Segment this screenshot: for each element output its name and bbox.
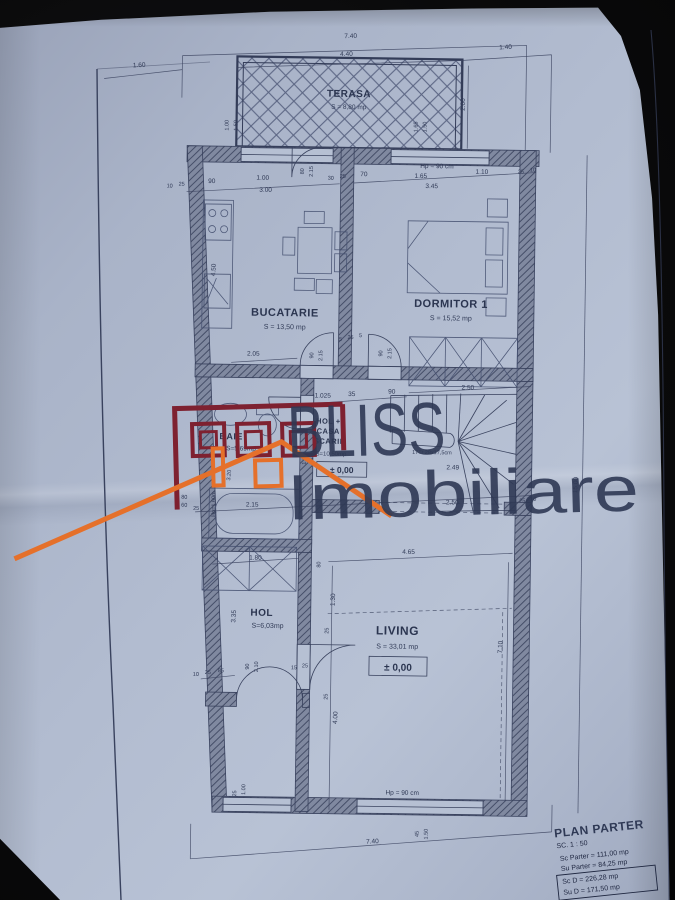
door-opening [300,365,333,378]
bedroom-door-swing [368,334,401,366]
dim-label: 1.50 [424,829,430,840]
watermark-brand-bottom: Imobiliare [286,452,640,533]
dim-label: 4.50 [210,263,218,276]
dim-label: 60 [181,503,187,509]
dim-label: 30 [328,176,334,182]
room-label-terasa: TERASA [327,89,371,101]
dim-label: 80 [300,168,306,174]
dim-label: 1.00 [256,175,269,182]
dim-label: 25 [324,628,330,634]
dim-label: 5 [339,337,342,343]
dim-label: 1.65 [413,121,419,132]
dim-label: 3.35 [230,609,238,622]
door-opening [368,366,401,379]
dim-label: 1.65 [414,173,427,180]
vestibule-window [223,797,291,812]
dim-label: 7.40 [344,33,357,40]
dim-label: 85 [218,668,224,674]
living-window [357,799,483,815]
room-area-terasa: S = 8,80 mp [331,104,367,111]
dim-label: 25 [347,335,353,341]
dim-label: 10 [193,672,199,678]
dim-label: 10 [530,167,536,173]
dim-label: 2.00 [460,98,467,111]
floor-plan-drawing: 7.40 1.60 4.40 1.40 2.00 1.00 1.50 1.65 … [0,0,675,900]
dim-label: 1.10 [476,169,489,176]
dim-label: 1.00 [224,120,230,131]
room-area-bucatarie: S = 13,50 mp [264,324,306,332]
dim-label: 1.60 [133,62,146,70]
dim-label: 1.80 [249,555,262,562]
dim-label: 80 [181,495,187,501]
room-label-hol: HOL [250,608,273,619]
dim-label: 1.00 [241,784,247,795]
kitchen-door-swing [300,332,333,365]
room-area-dormitor: S = 15,52 mp [430,315,472,323]
dim-label: 2.10 [254,661,260,672]
dim-label: Hp = 90 cm [385,790,419,797]
dim-label: 7.40 [366,838,379,846]
living-door-swing [310,644,356,690]
dim-label: 25 [232,790,238,796]
dim-label: 2.15 [246,502,259,509]
dim-label: 25 [302,663,308,669]
dim-label: 90 [245,663,251,669]
dim-label: 25 [518,169,524,175]
dim-label: 4.40 [340,51,353,58]
living-level: ± 0,00 [384,662,412,673]
dim-label: Hp=1,60m [211,491,217,517]
title-block: PLAN PARTER SC. 1 : 50 Sc Parter = 111,0… [551,816,657,900]
dim-label: 3.45 [425,183,438,190]
dim-label: 2.15 [309,166,315,177]
dim-label: 5 [359,333,362,339]
dim-label: 25 [324,694,330,700]
dim-label: 3.00 [259,187,272,194]
hol-south-stub-right [302,693,309,707]
room-area-hol: S=6,03mp [251,623,283,630]
dim-label: 4.65 [402,549,415,556]
dim-label: 45 [415,831,421,837]
dining-table [282,211,347,294]
dim-label: 2.15 [318,350,324,361]
room-label-dormitor: DORMITOR 1 [414,298,488,311]
dim-label: 90 [309,352,315,358]
dim-label: 1.30 [330,593,338,606]
bath-south-wall [202,538,312,553]
kitchen-window [241,147,333,162]
dim-label: 2.50 [461,385,474,392]
room-label-living: LIVING [376,623,419,638]
dim-label: 7.10 [497,640,505,653]
dim-label: 1.40 [499,44,512,51]
plan-title: PLAN PARTER [553,817,644,840]
dim-label: 25 [205,670,211,676]
terasa-parapet [236,56,462,149]
dim-label: 80 [316,561,322,567]
dim-label: 25 [179,182,185,188]
dim-label: 90 [208,178,216,185]
logo-window [255,460,282,487]
hol-south-stub-left [205,692,236,706]
nightstand [487,199,507,217]
dim-label: 3.20 [226,470,233,481]
dim-label: 4.00 [332,711,340,724]
dim-label: 25 [340,174,346,180]
room-label-bucatarie: BUCATARIE [251,307,319,320]
dim-label: 70 [360,171,368,178]
dim-label: 90 [378,350,384,356]
dim-label: 25 [193,506,199,512]
dim-label: 10 [167,183,173,189]
bathtub [209,488,300,539]
dim-label: 1.50 [422,122,428,133]
nightstand [486,298,506,316]
plan-scale: SC. 1 : 50 [556,840,588,850]
mid-wall [195,364,533,382]
hol-double-door-swing [237,666,303,700]
dim-label: 15 [291,665,297,671]
dim-label: Hp = 90 cm [420,163,454,170]
photo-of-floor-plan: 7.40 1.60 4.40 1.40 2.00 1.00 1.50 1.65 … [0,0,675,900]
dim-label: 2.15 [387,348,393,359]
dim-label: 1.50 [233,120,239,131]
dim-label: 2.05 [247,351,260,358]
room-area-living: S = 33,01 mp [376,643,418,651]
